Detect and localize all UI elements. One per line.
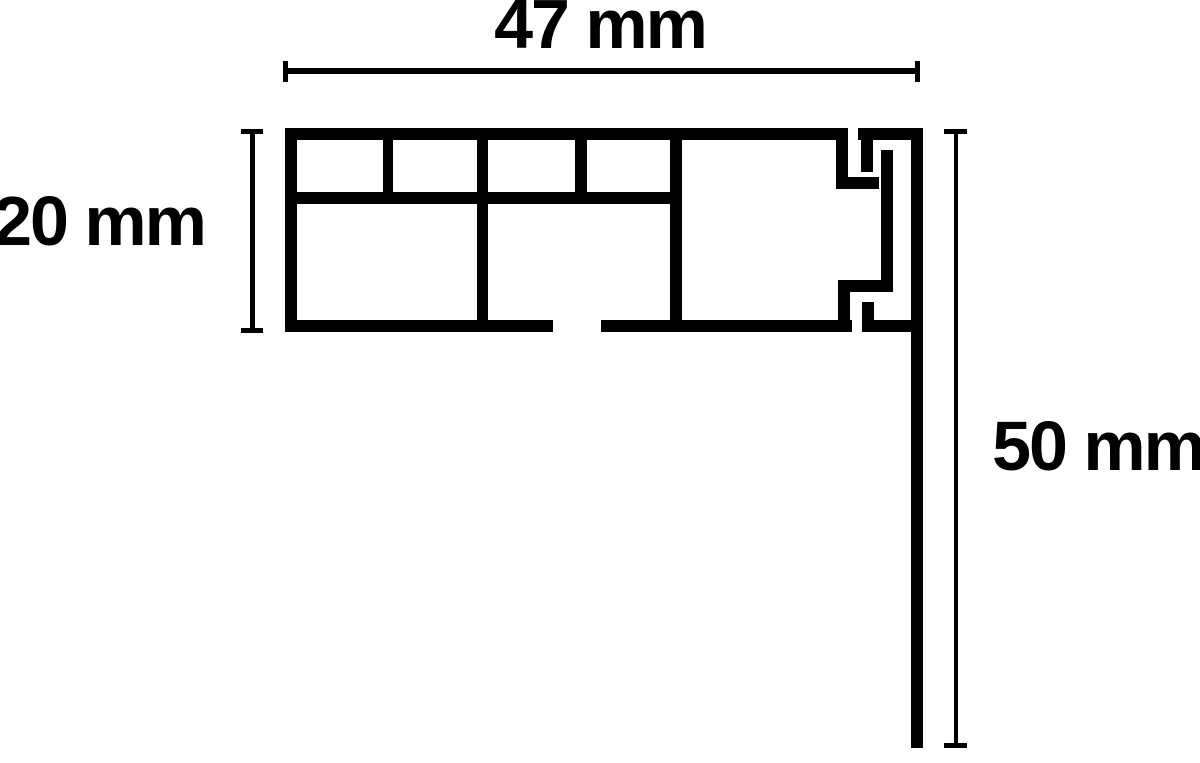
drop-dim-line <box>954 129 958 747</box>
profile-left-wall <box>285 128 297 332</box>
diagram-canvas: 47 mm 20 mm 50 mm <box>0 0 1200 763</box>
top-clip-leg <box>861 140 873 172</box>
profile-bottom-wall-right <box>601 320 852 332</box>
bottom-hook-down-leg <box>838 292 850 320</box>
divider-vertical-full-2 <box>670 140 682 320</box>
width-dim-tick-right <box>915 61 920 82</box>
width-dimension-label: 47 mm <box>494 0 706 59</box>
bottom-clip-finger <box>862 302 874 320</box>
top-hook-foot <box>836 177 879 189</box>
divider-vertical-full-1 <box>477 140 488 320</box>
drop-dim-tick-top <box>944 129 967 134</box>
width-dimension-line <box>283 61 920 82</box>
height-dim-line <box>250 129 255 333</box>
height-dimension-label: 20 mm <box>0 186 205 256</box>
divider-horizontal-1 <box>297 192 477 204</box>
width-dim-line <box>285 68 918 74</box>
profile-cross-section <box>285 128 923 748</box>
divider-horizontal-2 <box>488 192 670 204</box>
height-dimension-line <box>241 129 263 333</box>
height-dim-tick-bottom <box>241 328 263 333</box>
inner-flange-bar <box>881 150 893 292</box>
profile-bottom-wall-left <box>285 320 553 332</box>
right-drop-bar <box>911 128 923 748</box>
bottom-hook-horizontal <box>838 280 893 292</box>
drop-dimension-label: 50 mm <box>992 411 1200 481</box>
width-dim-tick-left <box>283 61 288 82</box>
drop-dimension-line <box>944 129 967 748</box>
profile-top-wall <box>285 128 848 140</box>
profile-diagram <box>0 0 1200 763</box>
height-dim-tick-top <box>241 129 263 134</box>
drop-dim-tick-bottom <box>944 743 967 748</box>
